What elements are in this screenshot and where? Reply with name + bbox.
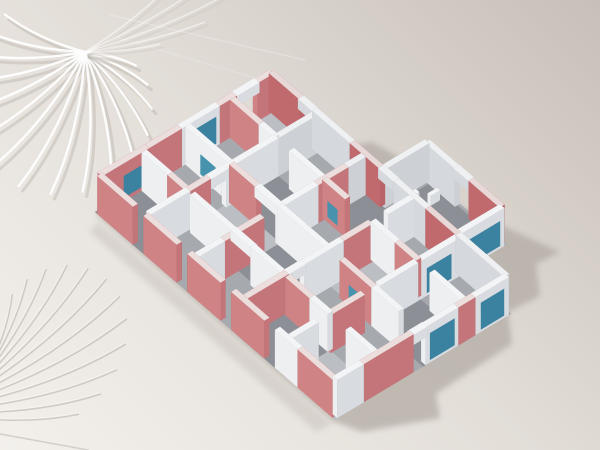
render-stage: [0, 0, 600, 450]
palm-frond-shadow-bottom-left: [0, 264, 126, 420]
floorplan-3d-render: [0, 0, 600, 450]
